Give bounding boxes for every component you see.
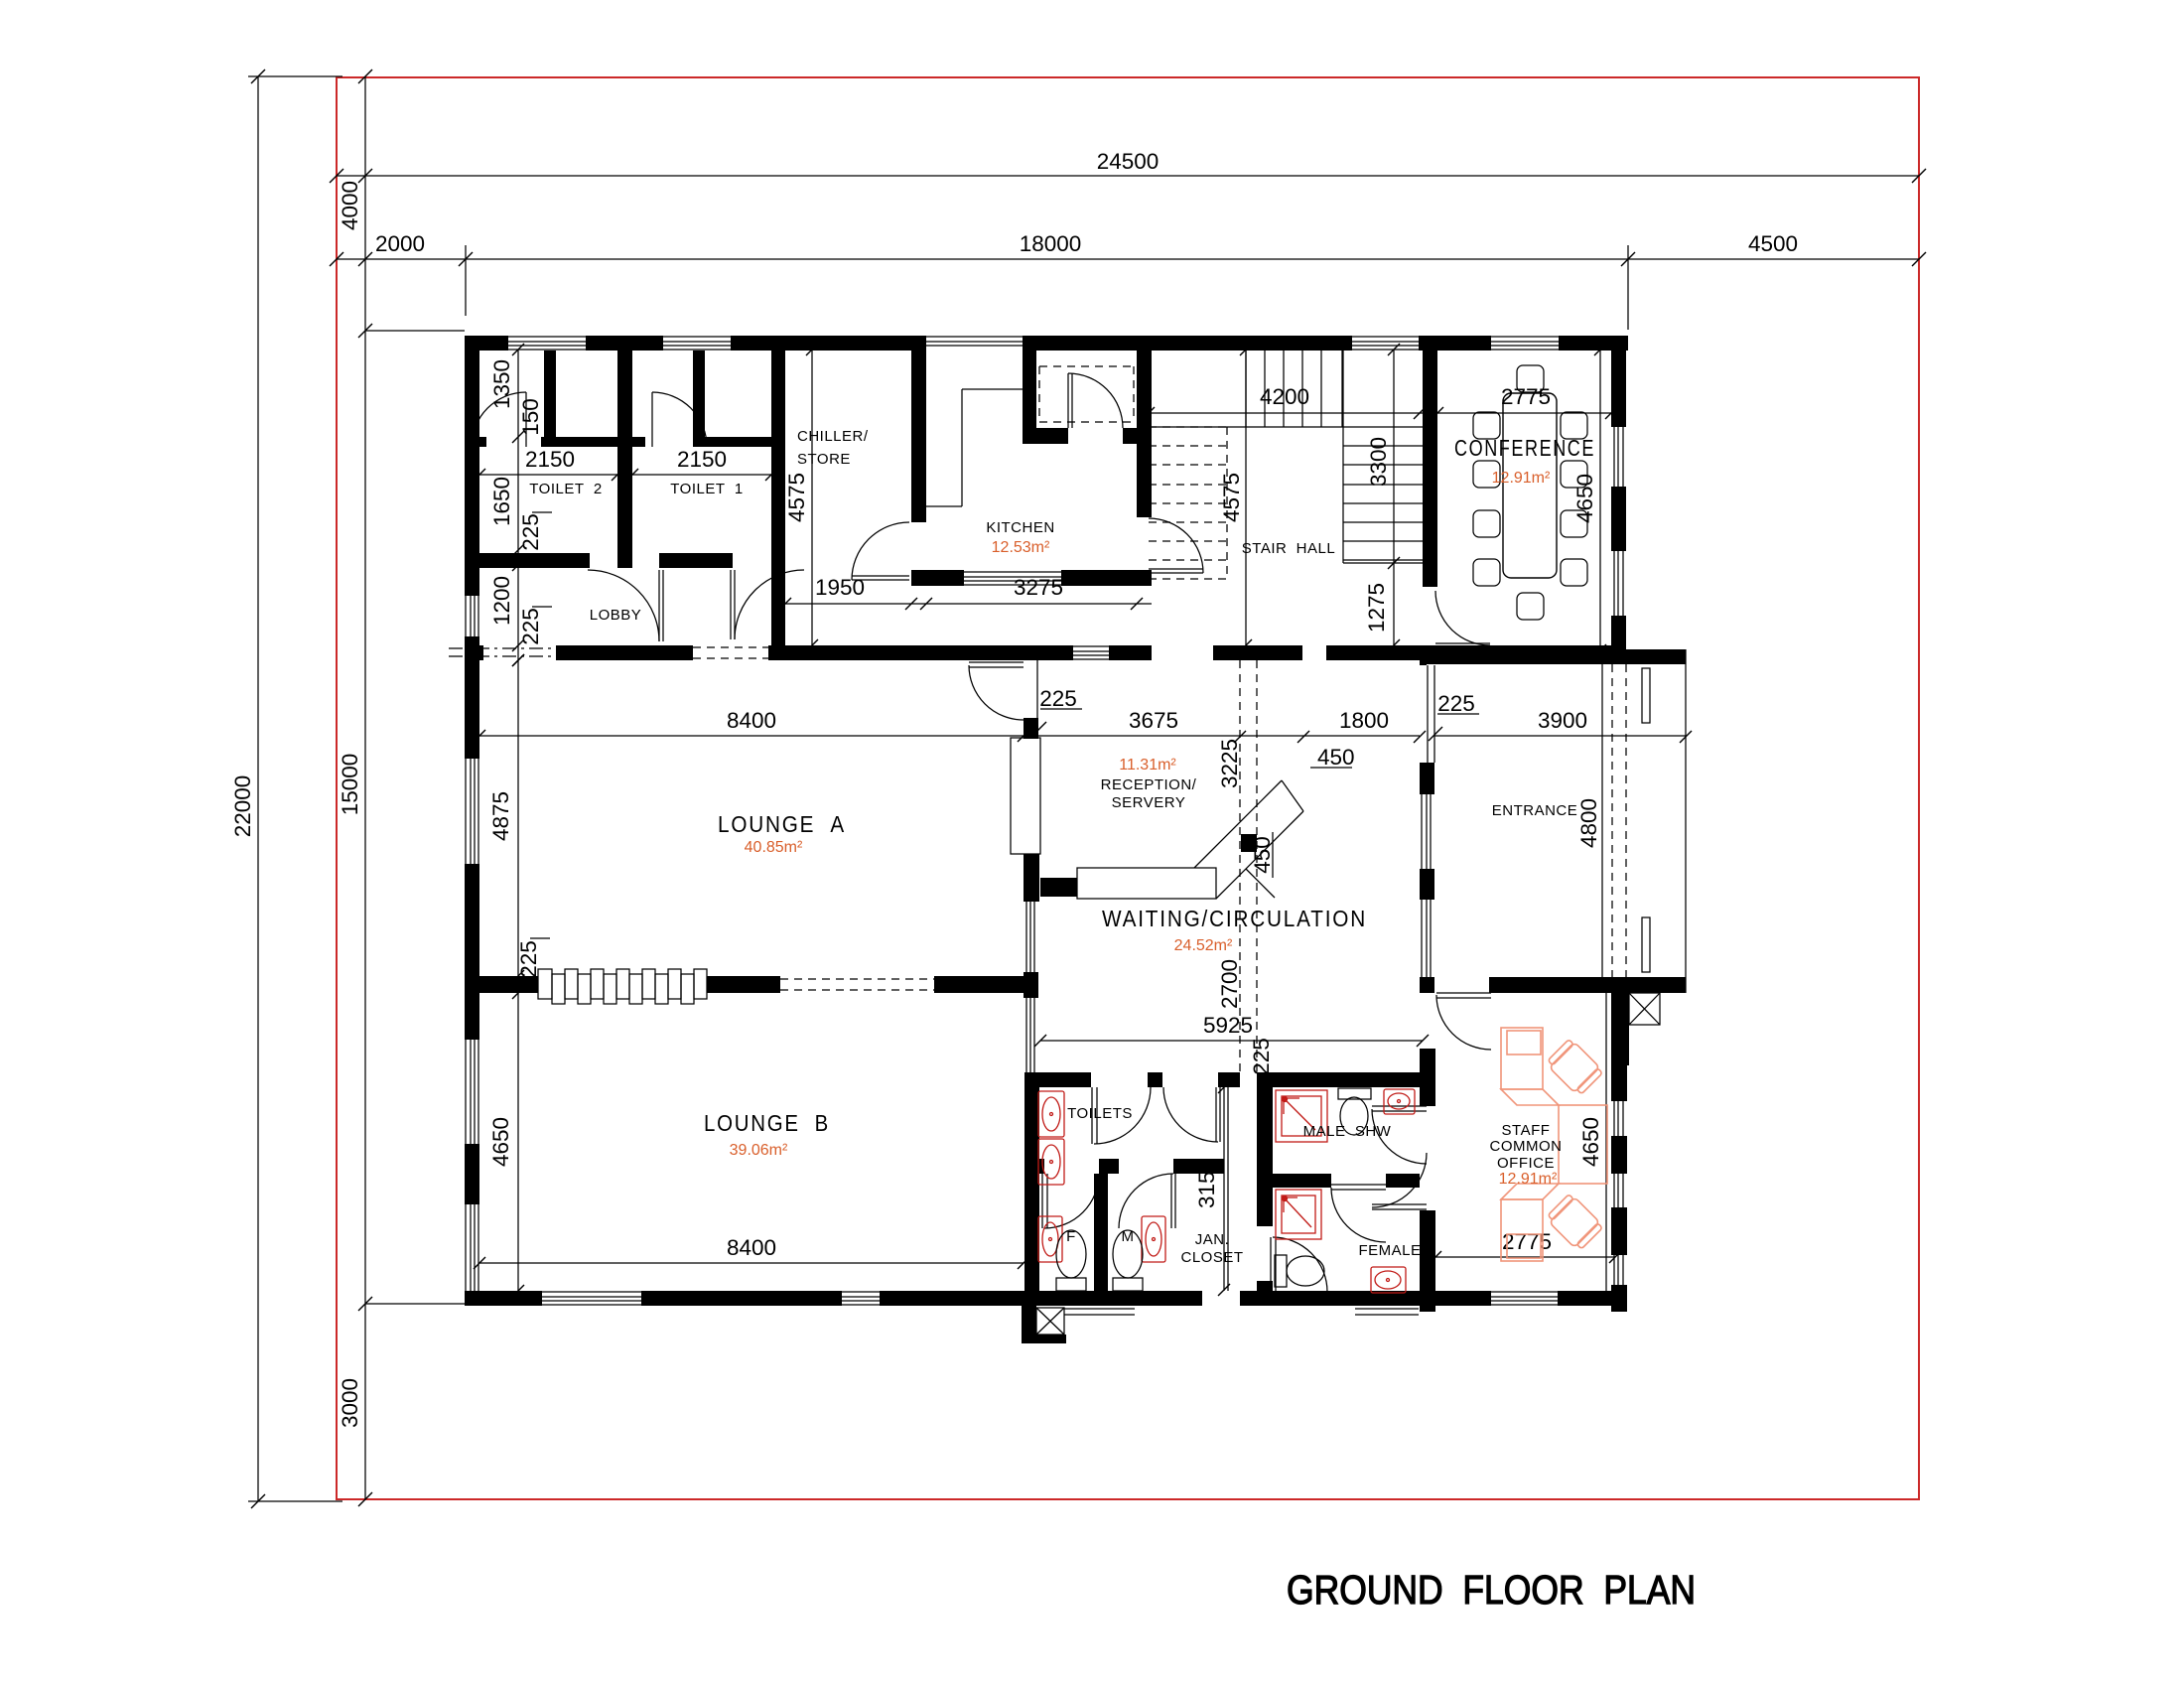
svg-text:FEMALE: FEMALE <box>1358 1242 1421 1259</box>
svg-text:225: 225 <box>1039 686 1077 711</box>
svg-text:CONFERENCE: CONFERENCE <box>1454 435 1595 461</box>
svg-text:4800: 4800 <box>1576 798 1601 848</box>
svg-text:11.31m²: 11.31m² <box>1119 757 1176 774</box>
svg-text:1350: 1350 <box>489 359 514 409</box>
svg-text:8400: 8400 <box>727 1235 776 1260</box>
svg-text:CHILLER/: CHILLER/ <box>797 428 869 445</box>
svg-text:SERVERY: SERVERY <box>1112 794 1186 811</box>
svg-text:GROUND FLOOR PLAN: GROUND FLOOR PLAN <box>1287 1567 1696 1613</box>
svg-text:2150: 2150 <box>677 447 727 472</box>
svg-text:ENTRANCE: ENTRANCE <box>1492 802 1578 819</box>
svg-text:1650: 1650 <box>489 477 514 526</box>
svg-text:2150: 2150 <box>525 447 575 472</box>
svg-text:STORE: STORE <box>797 451 851 468</box>
svg-text:M: M <box>1122 1228 1135 1245</box>
svg-text:225: 225 <box>518 513 543 551</box>
svg-text:JAN.: JAN. <box>1195 1231 1230 1248</box>
svg-text:15000: 15000 <box>338 754 362 816</box>
svg-text:COMMON: COMMON <box>1490 1138 1563 1155</box>
svg-text:4000: 4000 <box>338 181 362 230</box>
svg-text:12.53m²: 12.53m² <box>992 539 1050 556</box>
svg-text:8400: 8400 <box>727 708 776 733</box>
svg-text:5925: 5925 <box>1203 1013 1253 1038</box>
svg-text:39.06m²: 39.06m² <box>730 1142 788 1159</box>
svg-text:22000: 22000 <box>230 775 255 838</box>
svg-text:KITCHEN: KITCHEN <box>986 519 1054 536</box>
svg-text:3000: 3000 <box>338 1378 362 1428</box>
svg-text:3675: 3675 <box>1129 708 1178 733</box>
svg-text:1800: 1800 <box>1339 708 1389 733</box>
svg-text:OFFICE: OFFICE <box>1497 1155 1555 1172</box>
svg-text:12.91m²: 12.91m² <box>1499 1171 1558 1188</box>
svg-text:24500: 24500 <box>1097 149 1160 174</box>
svg-text:4650: 4650 <box>488 1117 513 1167</box>
svg-text:4875: 4875 <box>488 791 513 841</box>
svg-text:MALE SHW: MALE SHW <box>1303 1123 1392 1140</box>
svg-text:STAIR HALL: STAIR HALL <box>1242 540 1335 557</box>
svg-text:225: 225 <box>518 608 543 645</box>
svg-text:4500: 4500 <box>1748 231 1798 256</box>
svg-text:LOBBY: LOBBY <box>590 607 642 624</box>
svg-text:TOILETS: TOILETS <box>1067 1105 1133 1122</box>
svg-text:WAITING/CIRCULATION: WAITING/CIRCULATION <box>1102 906 1367 931</box>
svg-text:225: 225 <box>1249 1038 1274 1075</box>
svg-text:LOUNGE A: LOUNGE A <box>718 811 846 837</box>
svg-text:18000: 18000 <box>1020 231 1082 256</box>
svg-text:3225: 3225 <box>1217 739 1242 788</box>
svg-text:2000: 2000 <box>375 231 425 256</box>
svg-text:4650: 4650 <box>1578 1117 1603 1167</box>
svg-text:40.85m²: 40.85m² <box>745 839 803 856</box>
svg-text:TOILET 2: TOILET 2 <box>529 481 602 497</box>
svg-text:24.52m²: 24.52m² <box>1174 937 1233 954</box>
svg-text:LOUNGE B: LOUNGE B <box>704 1110 830 1136</box>
svg-text:CLOSET: CLOSET <box>1180 1249 1243 1266</box>
svg-text:TOILET 1: TOILET 1 <box>670 481 743 497</box>
svg-text:4575: 4575 <box>784 473 809 522</box>
svg-text:2700: 2700 <box>1217 959 1242 1009</box>
svg-text:3900: 3900 <box>1538 708 1587 733</box>
svg-text:4650: 4650 <box>1572 474 1597 523</box>
svg-text:225: 225 <box>1437 691 1475 716</box>
svg-text:RECEPTION/: RECEPTION/ <box>1101 776 1197 793</box>
svg-text:4575: 4575 <box>1219 473 1244 522</box>
svg-text:1200: 1200 <box>489 576 514 626</box>
svg-text:STAFF: STAFF <box>1502 1122 1551 1139</box>
svg-text:3275: 3275 <box>1014 575 1063 600</box>
svg-text:F: F <box>1066 1228 1076 1245</box>
svg-text:12.91m²: 12.91m² <box>1492 470 1551 487</box>
svg-text:1950: 1950 <box>815 575 865 600</box>
svg-text:1275: 1275 <box>1364 583 1389 633</box>
svg-text:450: 450 <box>1317 745 1355 770</box>
svg-text:150: 150 <box>518 398 543 436</box>
svg-text:225: 225 <box>516 940 541 978</box>
svg-text:3300: 3300 <box>1366 437 1391 487</box>
svg-text:2775: 2775 <box>1502 1229 1552 1254</box>
